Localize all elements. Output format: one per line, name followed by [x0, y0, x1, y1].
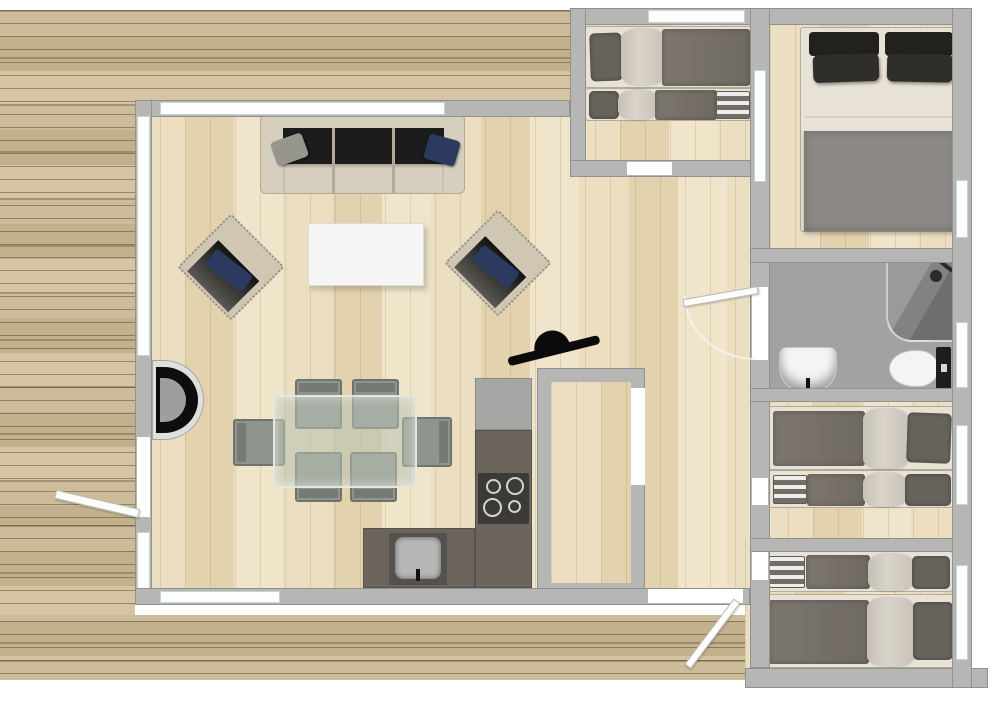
wall-module-top — [570, 8, 972, 25]
bed-duvet — [662, 29, 750, 86]
bed-pillow — [887, 53, 953, 82]
deck-left — [0, 100, 135, 615]
sofa-divider — [332, 128, 335, 193]
bed-duvet-folded — [863, 409, 907, 469]
deck-top — [0, 10, 570, 100]
window-living-left-upper — [137, 116, 150, 356]
armchair-right — [444, 209, 551, 316]
twin-bedroom — [763, 402, 953, 538]
burner — [483, 498, 502, 517]
wall-bunkroom-left — [570, 8, 586, 177]
single-bed — [585, 26, 752, 88]
folded-blanket — [716, 91, 750, 119]
window-master-left — [754, 70, 766, 182]
single-bed — [763, 594, 955, 668]
window-master-right — [956, 180, 968, 238]
sofa-seat-cushions — [283, 164, 444, 193]
bed-pillow — [905, 474, 951, 506]
door-opening-twinroom — [752, 478, 768, 505]
burner — [508, 500, 521, 513]
chair-backrest — [299, 489, 338, 498]
bed-duvet — [655, 90, 717, 120]
wall-master-bathroom-divider — [750, 248, 972, 263]
bed-pillow — [912, 556, 950, 589]
storage-floor — [551, 382, 631, 583]
deck-bottom — [0, 615, 750, 680]
bed-duvet — [807, 474, 865, 506]
bed-duvet — [773, 411, 865, 466]
bed-duvet-folded — [868, 554, 912, 591]
bed-pillow — [813, 53, 880, 83]
bunk-bedroom — [570, 8, 752, 177]
bed-blanket — [804, 131, 956, 231]
single-bed — [585, 88, 752, 121]
flush-button — [941, 364, 947, 372]
folded-blanket — [773, 475, 807, 504]
burner — [506, 477, 524, 495]
chair-backrest — [299, 383, 338, 392]
showerhead-icon — [930, 270, 942, 282]
single-bed — [763, 551, 953, 592]
burner — [486, 479, 501, 494]
window-living-left-lower — [137, 532, 150, 590]
bed-duvet-folded — [621, 29, 663, 85]
hob — [478, 473, 529, 524]
window-bunkroom-top — [648, 10, 745, 23]
double-bed — [800, 27, 958, 232]
window-bathroom-right — [956, 322, 968, 388]
wall-bathroom-twin-divider — [750, 388, 972, 402]
single-bed — [768, 406, 954, 470]
door-opening-deck-left — [137, 437, 150, 517]
toilet-cistern — [936, 347, 951, 389]
armchair-left — [177, 213, 284, 320]
door-opening-entrance — [648, 589, 743, 603]
window-living-bottom — [160, 591, 280, 603]
door-opening-bunkroom — [627, 162, 672, 175]
bed-pillow — [913, 602, 953, 660]
storage-room — [537, 368, 645, 597]
coffee-table — [308, 223, 424, 286]
hallway — [645, 177, 750, 605]
sofa-divider — [392, 128, 395, 193]
bed-pillow — [906, 412, 952, 464]
window-rear-right — [956, 565, 968, 660]
master-bedroom — [770, 25, 955, 255]
floor-plan — [0, 0, 1000, 707]
toilet-bowl — [889, 350, 939, 387]
bed-duvet — [769, 600, 869, 664]
sofa-back-cushions — [283, 128, 444, 164]
storage-door-opening — [631, 388, 645, 485]
bed-pillow — [589, 32, 623, 81]
single-bed — [768, 470, 954, 508]
chair-backrest — [237, 423, 246, 462]
sofa — [260, 114, 465, 194]
folded-blanket — [769, 556, 805, 588]
faucet — [416, 569, 420, 581]
sheet-fold-line — [805, 116, 955, 118]
shower — [886, 262, 958, 342]
wood-stove — [150, 360, 206, 440]
bed-pillow — [589, 91, 619, 119]
bed-duvet-folded — [618, 90, 656, 120]
sink — [389, 533, 447, 585]
kitchen-tall-unit — [475, 378, 532, 430]
bed-duvet — [806, 555, 870, 589]
wall-twin-rear-divider — [750, 538, 972, 552]
bed-pillow — [885, 32, 953, 56]
rear-bedroom — [745, 538, 953, 668]
window-twin-right — [956, 425, 968, 505]
washbasin — [779, 347, 837, 393]
bathroom — [763, 252, 955, 398]
door-opening-rearroom — [752, 552, 768, 580]
window-living-top — [160, 102, 445, 115]
bed-duvet-folded — [867, 598, 913, 666]
bed-duvet-folded — [863, 473, 905, 507]
